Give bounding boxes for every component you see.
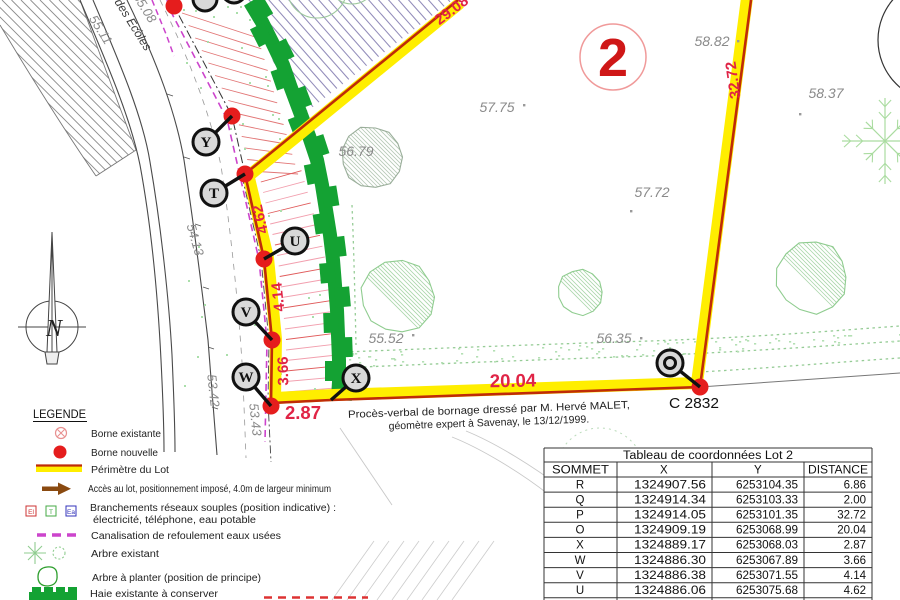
svg-text:Borne existante: Borne existante bbox=[91, 429, 161, 440]
svg-text:Y: Y bbox=[754, 465, 762, 477]
svg-text:T: T bbox=[209, 186, 219, 202]
svg-text:Q: Q bbox=[576, 494, 585, 506]
svg-text:Arbre à planter (position de p: Arbre à planter (position de principe) bbox=[92, 573, 261, 584]
svg-text:P: P bbox=[576, 510, 584, 522]
svg-text:V: V bbox=[241, 305, 252, 321]
svg-text:1324886.06: 1324886.06 bbox=[634, 585, 706, 597]
svg-text:2.00: 2.00 bbox=[844, 494, 866, 506]
svg-text:SOMMET: SOMMET bbox=[552, 465, 609, 477]
svg-text:6253071.55: 6253071.55 bbox=[736, 570, 798, 582]
svg-text:2.87: 2.87 bbox=[285, 402, 321, 423]
svg-text:6253068.99: 6253068.99 bbox=[736, 525, 798, 537]
svg-text:Haie existante à conserver: Haie existante à conserver bbox=[90, 589, 219, 600]
svg-text:6.86: 6.86 bbox=[844, 479, 866, 491]
svg-text:58.82: 58.82 bbox=[694, 33, 729, 49]
svg-text:El: El bbox=[28, 509, 34, 516]
svg-text:20.04: 20.04 bbox=[837, 525, 866, 537]
svg-text:1324909.19: 1324909.19 bbox=[634, 525, 706, 537]
svg-text:3.66: 3.66 bbox=[275, 356, 293, 385]
svg-text:DISTANCE: DISTANCE bbox=[808, 465, 868, 477]
svg-text:Canalisation de refoulement ea: Canalisation de refoulement eaux usées bbox=[91, 531, 281, 542]
svg-text:6253104.35: 6253104.35 bbox=[736, 479, 798, 491]
svg-text:1324886.30: 1324886.30 bbox=[634, 555, 706, 567]
svg-text:Tableau de coordonnées Lot 2: Tableau de coordonnées Lot 2 bbox=[623, 450, 793, 462]
svg-text:1324907.56: 1324907.56 bbox=[634, 479, 706, 491]
svg-text:Arbre existant: Arbre existant bbox=[91, 549, 159, 560]
svg-text:6253068.03: 6253068.03 bbox=[736, 540, 798, 552]
svg-text:57.75: 57.75 bbox=[479, 99, 514, 115]
svg-text:2: 2 bbox=[598, 28, 628, 88]
svg-text:Accès au lot, positionnement i: Accès au lot, positionnement imposé, 4.0… bbox=[88, 484, 331, 495]
svg-text:LEGENDE: LEGENDE bbox=[33, 407, 86, 421]
svg-text:6253075.68: 6253075.68 bbox=[736, 585, 798, 597]
svg-text:6253067.89: 6253067.89 bbox=[736, 555, 798, 567]
svg-text:58.37: 58.37 bbox=[808, 85, 844, 101]
svg-text:4.14: 4.14 bbox=[268, 281, 288, 312]
svg-text:U: U bbox=[576, 585, 584, 597]
svg-text:Périmètre du Lot: Périmètre du Lot bbox=[91, 465, 169, 476]
svg-text:X: X bbox=[576, 540, 584, 552]
svg-text:Ea: Ea bbox=[67, 509, 75, 516]
svg-text:56.79: 56.79 bbox=[338, 143, 373, 159]
svg-text:6253101.35: 6253101.35 bbox=[736, 510, 798, 522]
svg-text:1324889.17: 1324889.17 bbox=[634, 540, 706, 552]
svg-text:32.72: 32.72 bbox=[837, 510, 866, 522]
svg-text:Y: Y bbox=[201, 135, 212, 151]
svg-text:O: O bbox=[576, 525, 585, 537]
svg-text:W: W bbox=[239, 370, 254, 386]
svg-text:Branchements réseaux souples (: Branchements réseaux souples (position i… bbox=[90, 503, 336, 514]
svg-text:T: T bbox=[49, 509, 53, 516]
svg-text:électricité, téléphone, eau po: électricité, téléphone, eau potable bbox=[93, 515, 256, 526]
svg-text:2.87: 2.87 bbox=[844, 540, 866, 552]
svg-text:U: U bbox=[290, 234, 301, 250]
svg-text:R: R bbox=[576, 479, 584, 491]
svg-text:1324914.05: 1324914.05 bbox=[634, 510, 706, 522]
svg-text:4.62: 4.62 bbox=[844, 585, 866, 597]
svg-text:1324914.34: 1324914.34 bbox=[634, 494, 707, 506]
svg-text:55.52: 55.52 bbox=[368, 330, 403, 346]
svg-text:4.14: 4.14 bbox=[844, 570, 867, 582]
svg-text:W: W bbox=[575, 555, 586, 567]
svg-text:6253103.33: 6253103.33 bbox=[736, 494, 798, 506]
svg-text:57.72: 57.72 bbox=[634, 184, 669, 200]
svg-text:56.35: 56.35 bbox=[596, 330, 631, 346]
svg-text:Borne nouvelle: Borne nouvelle bbox=[91, 448, 158, 459]
svg-text:3.66: 3.66 bbox=[844, 555, 866, 567]
svg-text:V: V bbox=[576, 570, 584, 582]
svg-text:X: X bbox=[660, 465, 668, 477]
svg-text:X: X bbox=[351, 371, 362, 387]
svg-text:20.04: 20.04 bbox=[490, 369, 537, 391]
svg-text:N: N bbox=[45, 316, 64, 342]
svg-text:1324886.38: 1324886.38 bbox=[634, 570, 706, 582]
svg-text:C 2832: C 2832 bbox=[669, 395, 719, 412]
